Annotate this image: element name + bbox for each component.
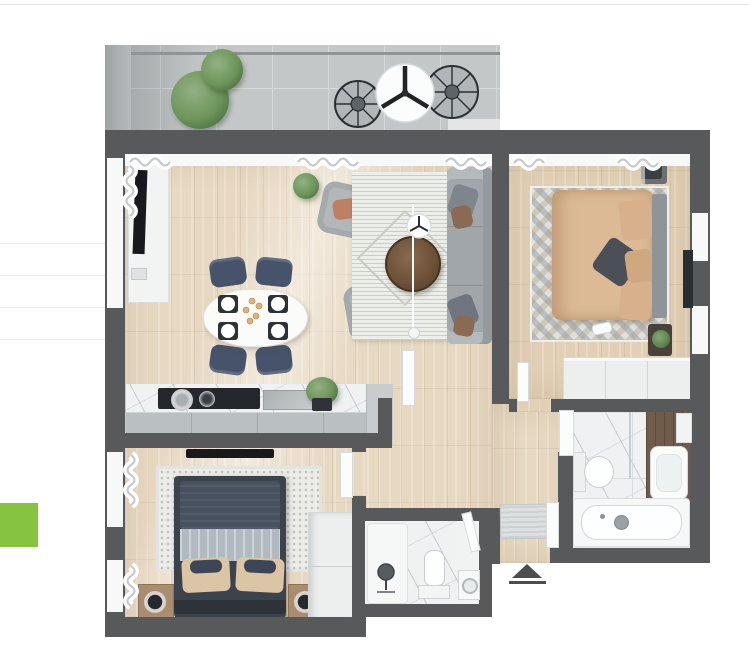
- curtain: [130, 159, 658, 167]
- candle-centerpiece: [243, 298, 262, 324]
- floor-plan-page: [0, 0, 749, 669]
- line-art-overlay: [0, 0, 749, 669]
- balcony-wire-chair: [335, 81, 381, 127]
- balcony-round-table: [376, 64, 434, 122]
- side-table: [407, 214, 431, 238]
- shower-head-icon: [377, 564, 395, 592]
- curtain-vertical: [127, 166, 135, 606]
